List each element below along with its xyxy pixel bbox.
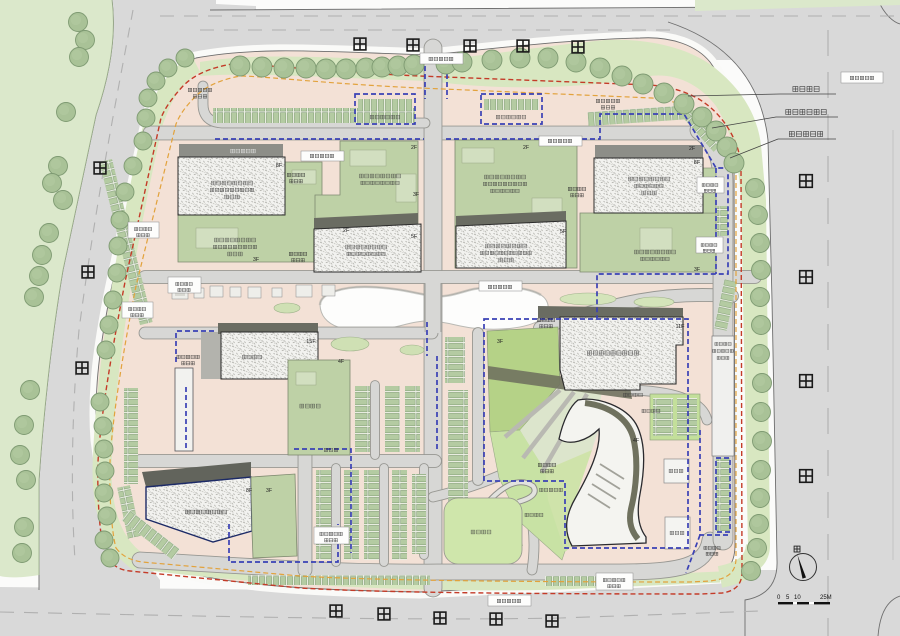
- svg-text:3F: 3F: [413, 192, 419, 198]
- svg-text:2F: 2F: [343, 228, 349, 234]
- svg-text:2F: 2F: [689, 146, 695, 152]
- svg-text:3F: 3F: [266, 488, 272, 494]
- svg-text:4F: 4F: [633, 438, 639, 444]
- svg-text:5F: 5F: [411, 234, 417, 240]
- svg-text:4F: 4F: [338, 359, 344, 365]
- svg-text:3F: 3F: [497, 339, 503, 345]
- svg-text:8F: 8F: [276, 163, 283, 169]
- svg-text:3F: 3F: [253, 257, 259, 263]
- svg-text:8F: 8F: [694, 160, 701, 166]
- svg-text:8F: 8F: [246, 488, 252, 494]
- svg-text:5F: 5F: [560, 229, 566, 235]
- svg-text:2F: 2F: [411, 145, 417, 151]
- svg-text:10: 10: [794, 595, 801, 601]
- svg-text:3F: 3F: [694, 267, 700, 273]
- svg-text:25M: 25M: [820, 595, 832, 601]
- svg-text:15F: 15F: [306, 339, 316, 345]
- svg-text:2F: 2F: [523, 145, 529, 151]
- svg-text:11F: 11F: [675, 324, 685, 330]
